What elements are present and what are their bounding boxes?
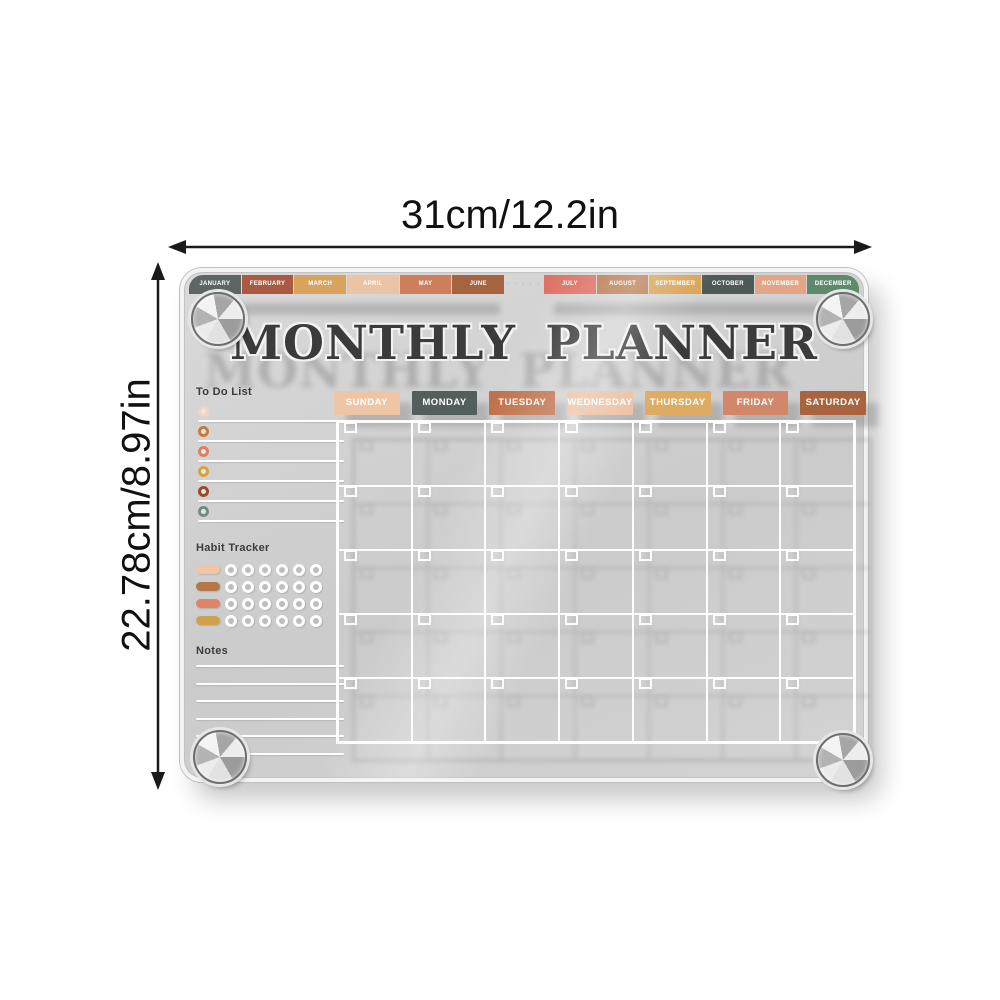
month-tab-september: SEPTEMBER bbox=[649, 275, 701, 294]
date-box bbox=[491, 550, 504, 561]
habit-pill-icon bbox=[196, 599, 220, 608]
calendar-cell bbox=[485, 678, 559, 742]
habit-circle-icon bbox=[259, 581, 271, 593]
habit-circle-icon bbox=[310, 598, 322, 610]
date-box bbox=[418, 550, 431, 561]
habit-circle-icon bbox=[276, 615, 288, 627]
day-header-sunday: SUNDAY bbox=[334, 391, 400, 415]
todo-line bbox=[198, 520, 344, 522]
habit-heading: Habit Tracker bbox=[196, 542, 344, 554]
date-box bbox=[565, 614, 578, 625]
todo-bullet-icon bbox=[198, 426, 209, 437]
habit-circle-icon bbox=[276, 581, 288, 593]
month-tab-june: JUNE bbox=[452, 275, 504, 294]
calendar-cell bbox=[559, 614, 633, 678]
month-tab-gap: · · · · · bbox=[505, 275, 543, 294]
month-tab-february: FEBRUARY bbox=[242, 275, 294, 294]
calendar-cell bbox=[338, 486, 412, 550]
month-tab-august: AUGUST bbox=[597, 275, 649, 294]
calendar-cell bbox=[559, 486, 633, 550]
habit-circle-icon bbox=[225, 581, 237, 593]
screw-icon bbox=[191, 292, 245, 346]
date-box bbox=[344, 614, 357, 625]
date-box bbox=[639, 486, 652, 497]
month-tab-november: NOVEMBER bbox=[755, 275, 807, 294]
date-box bbox=[418, 678, 431, 689]
calendar-cell bbox=[338, 550, 412, 614]
todo-bullet-icon bbox=[198, 406, 209, 417]
todo-row bbox=[196, 504, 344, 524]
habit-circle-icon bbox=[225, 598, 237, 610]
todo-bullet-icon bbox=[198, 466, 209, 477]
date-box bbox=[565, 550, 578, 561]
habit-tracker-section: Habit Tracker bbox=[196, 542, 344, 629]
screw-icon bbox=[816, 292, 870, 346]
habit-pill-icon bbox=[196, 616, 220, 625]
date-box bbox=[565, 486, 578, 497]
calendar-cell bbox=[780, 550, 854, 614]
date-box bbox=[418, 614, 431, 625]
notes-line bbox=[196, 683, 344, 685]
day-header-tuesday: TUESDAY bbox=[489, 391, 555, 415]
notes-line bbox=[196, 718, 344, 720]
calendar-cell bbox=[338, 678, 412, 742]
board-title: MONTHLY PLANNER bbox=[184, 316, 864, 371]
habit-circle-icon bbox=[242, 564, 254, 576]
todo-row bbox=[196, 424, 344, 444]
date-box bbox=[344, 550, 357, 561]
habit-circle-icon bbox=[259, 615, 271, 627]
calendar-cell bbox=[338, 614, 412, 678]
habit-row bbox=[196, 578, 344, 595]
calendar-cell bbox=[412, 678, 486, 742]
calendar-cell bbox=[707, 550, 781, 614]
calendar-cell bbox=[633, 422, 707, 486]
calendar-cell bbox=[338, 422, 412, 486]
height-dimension-arrow bbox=[147, 262, 169, 790]
date-box bbox=[418, 486, 431, 497]
date-box bbox=[344, 486, 357, 497]
calendar-cell bbox=[559, 550, 633, 614]
date-box bbox=[344, 678, 357, 689]
habit-row bbox=[196, 595, 344, 612]
calendar-cell bbox=[780, 614, 854, 678]
notes-heading: Notes bbox=[196, 645, 344, 657]
date-box bbox=[786, 614, 799, 625]
tab-shadow-right bbox=[554, 303, 854, 315]
date-box bbox=[713, 614, 726, 625]
calendar-cell bbox=[559, 422, 633, 486]
calendar-grid bbox=[336, 420, 856, 744]
todo-line bbox=[198, 440, 344, 442]
todo-row bbox=[196, 484, 344, 504]
calendar-cell bbox=[707, 486, 781, 550]
todo-bullet-icon bbox=[198, 506, 209, 517]
month-tab-march: MARCH bbox=[294, 275, 346, 294]
calendar-cell bbox=[707, 614, 781, 678]
day-header-friday: FRIDAY bbox=[723, 391, 789, 415]
habit-rows bbox=[196, 561, 344, 629]
date-box bbox=[491, 678, 504, 689]
todo-bullet-icon bbox=[198, 446, 209, 457]
screw-icon bbox=[193, 730, 247, 784]
date-box bbox=[491, 422, 504, 433]
day-header-saturday: SATURDAY bbox=[800, 391, 866, 415]
habit-circle-icon bbox=[293, 564, 305, 576]
habit-circle-icon bbox=[310, 581, 322, 593]
sidebar: To Do List Habit Tracker Notes bbox=[196, 386, 344, 770]
month-tab-may: MAY bbox=[400, 275, 452, 294]
habit-circle-icon bbox=[259, 564, 271, 576]
todo-line bbox=[198, 480, 344, 482]
todo-line bbox=[198, 460, 344, 462]
calendar-cell bbox=[485, 614, 559, 678]
habit-pill-icon bbox=[196, 582, 220, 591]
todo-row bbox=[196, 404, 344, 424]
month-tab-december: DECEMBER bbox=[807, 275, 859, 294]
calendar-cell bbox=[412, 614, 486, 678]
calendar-cell bbox=[780, 422, 854, 486]
calendar-cell bbox=[412, 550, 486, 614]
date-box bbox=[786, 550, 799, 561]
calendar-cell bbox=[780, 486, 854, 550]
habit-circle-icon bbox=[225, 615, 237, 627]
month-tab-october: OCTOBER bbox=[702, 275, 754, 294]
todo-heading: To Do List bbox=[196, 386, 344, 398]
habit-row bbox=[196, 561, 344, 578]
width-dimension-label: 31cm/12.2in bbox=[355, 193, 665, 238]
planner-board: JANUARYFEBRUARYMARCHAPRILMAYJUNE· · · · … bbox=[180, 268, 868, 782]
habit-circle-icon bbox=[276, 598, 288, 610]
habit-circle-icon bbox=[276, 564, 288, 576]
day-header-row: SUNDAYMONDAYTUESDAYWEDNESDAYTHURSDAYFRID… bbox=[334, 391, 866, 415]
habit-circle-icon bbox=[225, 564, 237, 576]
habit-circle-icon bbox=[259, 598, 271, 610]
calendar-cell bbox=[707, 678, 781, 742]
calendar-cell bbox=[559, 678, 633, 742]
calendar-cell bbox=[485, 550, 559, 614]
habit-circle-icon bbox=[293, 615, 305, 627]
calendar-cell bbox=[707, 422, 781, 486]
habit-circle-icon bbox=[293, 581, 305, 593]
day-header-wednesday: WEDNESDAY bbox=[567, 391, 633, 415]
habit-circle-icon bbox=[242, 581, 254, 593]
todo-line bbox=[198, 500, 344, 502]
calendar-cell bbox=[412, 486, 486, 550]
date-box bbox=[713, 678, 726, 689]
product-photo: 31cm/12.2in 22.78cm/8.97in JANUARYFEBRUA… bbox=[0, 0, 1000, 1000]
width-dimension-arrow bbox=[168, 236, 872, 258]
notes-line bbox=[196, 665, 344, 667]
date-box bbox=[491, 614, 504, 625]
month-tab-row: JANUARYFEBRUARYMARCHAPRILMAYJUNE· · · · … bbox=[189, 275, 859, 294]
date-box bbox=[565, 422, 578, 433]
calendar-cell bbox=[485, 422, 559, 486]
date-box bbox=[491, 486, 504, 497]
calendar-cell bbox=[412, 422, 486, 486]
date-box bbox=[786, 678, 799, 689]
day-header-thursday: THURSDAY bbox=[645, 391, 711, 415]
todo-rows bbox=[196, 404, 344, 524]
date-box bbox=[713, 422, 726, 433]
notes-line bbox=[196, 700, 344, 702]
date-box bbox=[713, 486, 726, 497]
habit-circle-icon bbox=[293, 598, 305, 610]
todo-bullet-icon bbox=[198, 486, 209, 497]
screw-icon bbox=[816, 733, 870, 787]
day-header-monday: MONDAY bbox=[412, 391, 478, 415]
date-box bbox=[786, 422, 799, 433]
calendar-cell bbox=[485, 486, 559, 550]
calendar-cell bbox=[633, 550, 707, 614]
date-box bbox=[565, 678, 578, 689]
habit-circle-icon bbox=[310, 615, 322, 627]
calendar-cell bbox=[633, 486, 707, 550]
habit-row bbox=[196, 612, 344, 629]
habit-circle-icon bbox=[310, 564, 322, 576]
date-box bbox=[639, 614, 652, 625]
todo-row bbox=[196, 444, 344, 464]
date-box bbox=[639, 422, 652, 433]
date-box bbox=[786, 486, 799, 497]
todo-row bbox=[196, 464, 344, 484]
habit-circle-icon bbox=[242, 598, 254, 610]
month-tab-july: JULY bbox=[544, 275, 596, 294]
date-box bbox=[418, 422, 431, 433]
calendar-cell bbox=[633, 678, 707, 742]
date-box bbox=[344, 422, 357, 433]
calendar-cell bbox=[633, 614, 707, 678]
month-tab-april: APRIL bbox=[347, 275, 399, 294]
todo-line bbox=[198, 420, 344, 422]
date-box bbox=[639, 678, 652, 689]
habit-pill-icon bbox=[196, 565, 220, 574]
habit-circle-icon bbox=[242, 615, 254, 627]
date-box bbox=[639, 550, 652, 561]
date-box bbox=[713, 550, 726, 561]
